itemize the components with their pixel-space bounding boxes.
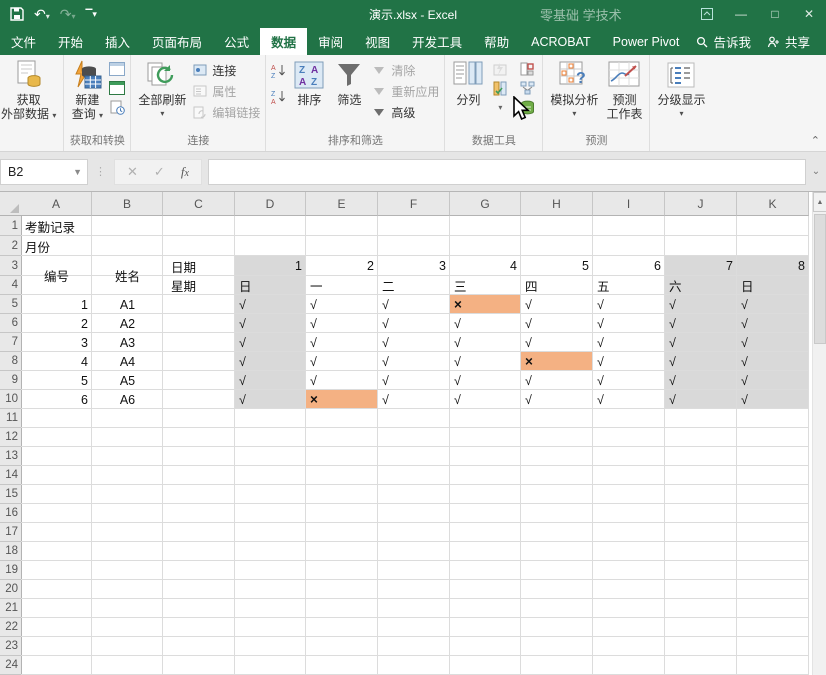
tell-me-box[interactable]: 告诉我 [690, 32, 757, 51]
tab-help[interactable]: 帮助 [473, 28, 520, 55]
record-id-cell[interactable]: 3 [21, 333, 92, 352]
date-cell[interactable]: 5 [521, 256, 593, 276]
row-header-10[interactable]: 10 [0, 390, 22, 409]
cell-G13[interactable] [450, 447, 521, 466]
row-header-3[interactable]: 3 [0, 256, 22, 276]
present-mark-cell[interactable]: √ [665, 390, 737, 409]
cell-B17[interactable] [92, 523, 163, 542]
date-cell[interactable]: 4 [450, 256, 521, 276]
cell-K19[interactable] [737, 561, 809, 580]
row-header-20[interactable]: 20 [0, 580, 22, 599]
cell-C14[interactable] [163, 466, 235, 485]
cell-K21[interactable] [737, 599, 809, 618]
name-box-caret[interactable]: ▼ [73, 167, 82, 177]
cell-J16[interactable] [665, 504, 737, 523]
row-header-15[interactable]: 15 [0, 485, 22, 504]
cell-E2[interactable] [306, 236, 378, 256]
cell-D11[interactable] [235, 409, 306, 428]
day-cell[interactable]: 日 [737, 276, 809, 295]
data-validation-caret[interactable]: ▾ [492, 99, 508, 115]
tab-power-pivot[interactable]: Power Pivot [602, 28, 691, 55]
cell-I11[interactable] [593, 409, 665, 428]
cell-E1[interactable] [306, 216, 378, 236]
select-all-corner[interactable] [0, 192, 22, 216]
cell-B21[interactable] [92, 599, 163, 618]
cell-F13[interactable] [378, 447, 450, 466]
refresh-all-button[interactable]: 全部刷新 ▾ [134, 56, 190, 121]
cell-K11[interactable] [737, 409, 809, 428]
cell-J24[interactable] [665, 656, 737, 675]
tab-page-layout[interactable]: 页面布局 [141, 28, 213, 55]
date-header-cell[interactable]: 日期 [163, 256, 235, 276]
cell-C13[interactable] [163, 447, 235, 466]
cell-G18[interactable] [450, 542, 521, 561]
present-mark-cell[interactable]: √ [665, 333, 737, 352]
cell-C2[interactable] [163, 236, 235, 256]
expand-formula-bar-icon[interactable]: ⌄ [806, 166, 826, 177]
name-box[interactable]: B2 ▼ [0, 159, 88, 185]
cell-D20[interactable] [235, 580, 306, 599]
cell-I17[interactable] [593, 523, 665, 542]
present-mark-cell[interactable]: √ [235, 333, 306, 352]
cell-J12[interactable] [665, 428, 737, 447]
customize-qat-icon[interactable]: ▔▾ [86, 9, 97, 20]
present-mark-cell[interactable]: √ [737, 371, 809, 390]
formula-input[interactable] [208, 159, 806, 185]
cell-H23[interactable] [521, 637, 593, 656]
scroll-up-icon[interactable]: ▲ [813, 192, 826, 212]
tab-view[interactable]: 视图 [354, 28, 401, 55]
tab-developer[interactable]: 开发工具 [401, 28, 473, 55]
cell-B14[interactable] [92, 466, 163, 485]
row-header-22[interactable]: 22 [0, 618, 22, 637]
cell-A17[interactable] [21, 523, 92, 542]
column-header-H[interactable]: H [521, 192, 593, 216]
cell-I22[interactable] [593, 618, 665, 637]
tab-home[interactable]: 开始 [47, 28, 94, 55]
cell-E12[interactable] [306, 428, 378, 447]
present-mark-cell[interactable]: √ [450, 352, 521, 371]
tab-file[interactable]: 文件 [0, 28, 47, 55]
row-header-5[interactable]: 5 [0, 295, 22, 314]
row-header-2[interactable]: 2 [0, 236, 22, 256]
cell-E11[interactable] [306, 409, 378, 428]
from-table-icon[interactable] [109, 61, 125, 77]
row-header-18[interactable]: 18 [0, 542, 22, 561]
cell-C9[interactable] [163, 371, 235, 390]
cell-H24[interactable] [521, 656, 593, 675]
row-header-9[interactable]: 9 [0, 371, 22, 390]
record-id-cell[interactable]: 1 [21, 295, 92, 314]
record-id-cell[interactable]: 6 [21, 390, 92, 409]
scrollbar-thumb[interactable] [814, 214, 826, 344]
present-mark-cell[interactable]: √ [665, 314, 737, 333]
row-header-24[interactable]: 24 [0, 656, 22, 675]
cell-K15[interactable] [737, 485, 809, 504]
cell-I20[interactable] [593, 580, 665, 599]
cell-D19[interactable] [235, 561, 306, 580]
cell-D12[interactable] [235, 428, 306, 447]
share-button[interactable]: 共享 [761, 32, 816, 51]
what-if-analysis-button[interactable]: ? 模拟分析 ▾ [546, 56, 602, 121]
present-mark-cell[interactable]: √ [593, 333, 665, 352]
cell-G22[interactable] [450, 618, 521, 637]
present-mark-cell[interactable]: √ [235, 390, 306, 409]
cell-D24[interactable] [235, 656, 306, 675]
cell-G24[interactable] [450, 656, 521, 675]
cell-D17[interactable] [235, 523, 306, 542]
column-header-G[interactable]: G [450, 192, 521, 216]
cell-F19[interactable] [378, 561, 450, 580]
cell-F22[interactable] [378, 618, 450, 637]
cell-A23[interactable] [21, 637, 92, 656]
cell-G17[interactable] [450, 523, 521, 542]
present-mark-cell[interactable]: √ [235, 314, 306, 333]
cell-F14[interactable] [378, 466, 450, 485]
date-cell[interactable]: 3 [378, 256, 450, 276]
cell-H15[interactable] [521, 485, 593, 504]
present-mark-cell[interactable]: √ [378, 352, 450, 371]
cell-H1[interactable] [521, 216, 593, 236]
cell-C21[interactable] [163, 599, 235, 618]
cell-D16[interactable] [235, 504, 306, 523]
cell-H21[interactable] [521, 599, 593, 618]
present-mark-cell[interactable]: √ [450, 390, 521, 409]
cell-A24[interactable] [21, 656, 92, 675]
row-header-23[interactable]: 23 [0, 637, 22, 656]
row-header-16[interactable]: 16 [0, 504, 22, 523]
date-cell[interactable]: 8 [737, 256, 809, 276]
minimize-icon[interactable]: — [724, 0, 758, 28]
present-mark-cell[interactable]: √ [521, 371, 593, 390]
cell-K23[interactable] [737, 637, 809, 656]
cell-C12[interactable] [163, 428, 235, 447]
present-mark-cell[interactable]: √ [235, 352, 306, 371]
advanced-filter-button[interactable]: 高级 [371, 103, 439, 121]
record-name-cell[interactable]: A6 [92, 390, 163, 409]
present-mark-cell[interactable]: √ [593, 371, 665, 390]
cell-E21[interactable] [306, 599, 378, 618]
cell-C15[interactable] [163, 485, 235, 504]
month-label-cell[interactable]: 月份 [21, 236, 121, 256]
present-mark-cell[interactable]: √ [235, 371, 306, 390]
row-header-21[interactable]: 21 [0, 599, 22, 618]
cell-H13[interactable] [521, 447, 593, 466]
cell-I14[interactable] [593, 466, 665, 485]
column-header-E[interactable]: E [306, 192, 378, 216]
row-header-17[interactable]: 17 [0, 523, 22, 542]
column-header-D[interactable]: D [235, 192, 306, 216]
cell-C20[interactable] [163, 580, 235, 599]
present-mark-cell[interactable]: √ [521, 295, 593, 314]
manage-data-model-icon[interactable] [519, 99, 535, 115]
cell-H18[interactable] [521, 542, 593, 561]
present-mark-cell[interactable]: √ [378, 295, 450, 314]
row-header-19[interactable]: 19 [0, 561, 22, 580]
cell-J11[interactable] [665, 409, 737, 428]
present-mark-cell[interactable]: √ [450, 333, 521, 352]
cell-C17[interactable] [163, 523, 235, 542]
cell-B23[interactable] [92, 637, 163, 656]
cell-D1[interactable] [235, 216, 306, 236]
tab-review[interactable]: 审阅 [307, 28, 354, 55]
cell-J1[interactable] [665, 216, 737, 236]
cell-H14[interactable] [521, 466, 593, 485]
present-mark-cell[interactable]: √ [593, 390, 665, 409]
cell-C11[interactable] [163, 409, 235, 428]
vertical-scrollbar[interactable]: ▲ [812, 192, 826, 675]
present-mark-cell[interactable]: √ [378, 314, 450, 333]
cell-I12[interactable] [593, 428, 665, 447]
present-mark-cell[interactable]: √ [593, 352, 665, 371]
cell-F18[interactable] [378, 542, 450, 561]
absent-mark-cell[interactable]: × [521, 352, 593, 371]
cell-B13[interactable] [92, 447, 163, 466]
record-name-cell[interactable]: A1 [92, 295, 163, 314]
collapse-ribbon-icon[interactable]: ⌃ [811, 134, 820, 147]
maximize-icon[interactable]: □ [758, 0, 792, 28]
day-cell[interactable]: 日 [235, 276, 306, 295]
cell-K14[interactable] [737, 466, 809, 485]
sort-ascending-button[interactable]: AZ [271, 62, 287, 78]
cell-C5[interactable] [163, 295, 235, 314]
cell-G21[interactable] [450, 599, 521, 618]
cell-I15[interactable] [593, 485, 665, 504]
cell-J13[interactable] [665, 447, 737, 466]
cell-E22[interactable] [306, 618, 378, 637]
column-header-J[interactable]: J [665, 192, 737, 216]
present-mark-cell[interactable]: √ [521, 333, 593, 352]
cell-J14[interactable] [665, 466, 737, 485]
cell-A11[interactable] [21, 409, 92, 428]
cell-F12[interactable] [378, 428, 450, 447]
cell-A15[interactable] [21, 485, 92, 504]
tab-data[interactable]: 数据 [260, 28, 307, 55]
existing-connections-icon[interactable] [109, 99, 125, 115]
cell-I18[interactable] [593, 542, 665, 561]
present-mark-cell[interactable]: √ [737, 390, 809, 409]
cell-G19[interactable] [450, 561, 521, 580]
redo-button[interactable]: ↷▾ [60, 7, 76, 22]
cell-J19[interactable] [665, 561, 737, 580]
cell-K16[interactable] [737, 504, 809, 523]
cell-E14[interactable] [306, 466, 378, 485]
cell-K2[interactable] [737, 236, 809, 256]
cell-G23[interactable] [450, 637, 521, 656]
day-cell[interactable]: 六 [665, 276, 737, 295]
row-header-8[interactable]: 8 [0, 352, 22, 371]
cell-C18[interactable] [163, 542, 235, 561]
row-header-12[interactable]: 12 [0, 428, 22, 447]
cell-D18[interactable] [235, 542, 306, 561]
cell-K18[interactable] [737, 542, 809, 561]
cell-F2[interactable] [378, 236, 450, 256]
cell-F23[interactable] [378, 637, 450, 656]
cell-B15[interactable] [92, 485, 163, 504]
date-cell[interactable]: 7 [665, 256, 737, 276]
cell-K12[interactable] [737, 428, 809, 447]
present-mark-cell[interactable]: √ [521, 314, 593, 333]
tab-acrobat[interactable]: ACROBAT [520, 28, 602, 55]
save-icon[interactable] [10, 7, 24, 21]
cell-G14[interactable] [450, 466, 521, 485]
cell-C24[interactable] [163, 656, 235, 675]
column-header-A[interactable]: A [21, 192, 92, 216]
present-mark-cell[interactable]: √ [737, 333, 809, 352]
cell-I1[interactable] [593, 216, 665, 236]
cell-E23[interactable] [306, 637, 378, 656]
cell-C8[interactable] [163, 352, 235, 371]
cell-H20[interactable] [521, 580, 593, 599]
cell-B11[interactable] [92, 409, 163, 428]
row-header-7[interactable]: 7 [0, 333, 22, 352]
present-mark-cell[interactable]: √ [737, 314, 809, 333]
present-mark-cell[interactable]: √ [737, 352, 809, 371]
record-id-cell[interactable]: 5 [21, 371, 92, 390]
cell-J2[interactable] [665, 236, 737, 256]
cell-F20[interactable] [378, 580, 450, 599]
cell-I23[interactable] [593, 637, 665, 656]
present-mark-cell[interactable]: √ [306, 371, 378, 390]
cell-G15[interactable] [450, 485, 521, 504]
cell-I2[interactable] [593, 236, 665, 256]
cell-D15[interactable] [235, 485, 306, 504]
cell-A22[interactable] [21, 618, 92, 637]
cell-H17[interactable] [521, 523, 593, 542]
cell-A14[interactable] [21, 466, 92, 485]
cell-B24[interactable] [92, 656, 163, 675]
row-header-13[interactable]: 13 [0, 447, 22, 466]
id-header-cell[interactable]: 编号 [21, 256, 92, 295]
cell-G11[interactable] [450, 409, 521, 428]
cell-I24[interactable] [593, 656, 665, 675]
day-cell[interactable]: 四 [521, 276, 593, 295]
column-header-I[interactable]: I [593, 192, 665, 216]
present-mark-cell[interactable]: √ [450, 314, 521, 333]
cell-F15[interactable] [378, 485, 450, 504]
row-header-4[interactable]: 4 [0, 276, 22, 295]
cell-A12[interactable] [21, 428, 92, 447]
sort-descending-button[interactable]: ZA [271, 88, 287, 104]
present-mark-cell[interactable]: √ [306, 295, 378, 314]
cell-E15[interactable] [306, 485, 378, 504]
cell-C10[interactable] [163, 390, 235, 409]
cell-F16[interactable] [378, 504, 450, 523]
date-cell[interactable]: 1 [235, 256, 306, 276]
cell-H19[interactable] [521, 561, 593, 580]
cell-F1[interactable] [378, 216, 450, 236]
cell-B18[interactable] [92, 542, 163, 561]
cell-K13[interactable] [737, 447, 809, 466]
present-mark-cell[interactable]: √ [665, 295, 737, 314]
name-header-cell[interactable]: 姓名 [92, 256, 163, 295]
present-mark-cell[interactable]: √ [306, 314, 378, 333]
present-mark-cell[interactable]: √ [593, 314, 665, 333]
cell-E13[interactable] [306, 447, 378, 466]
cell-C7[interactable] [163, 333, 235, 352]
row-header-1[interactable]: 1 [0, 216, 22, 236]
cell-C16[interactable] [163, 504, 235, 523]
present-mark-cell[interactable]: √ [593, 295, 665, 314]
record-id-cell[interactable]: 4 [21, 352, 92, 371]
present-mark-cell[interactable]: √ [235, 295, 306, 314]
cell-K22[interactable] [737, 618, 809, 637]
cell-D21[interactable] [235, 599, 306, 618]
cell-F21[interactable] [378, 599, 450, 618]
cell-C23[interactable] [163, 637, 235, 656]
forecast-sheet-button[interactable]: 预测 工作表 [602, 56, 646, 121]
insert-function-icon[interactable]: fx [181, 164, 189, 180]
cell-C6[interactable] [163, 314, 235, 333]
cell-D22[interactable] [235, 618, 306, 637]
cell-B16[interactable] [92, 504, 163, 523]
column-header-F[interactable]: F [378, 192, 450, 216]
cell-J21[interactable] [665, 599, 737, 618]
cell-J22[interactable] [665, 618, 737, 637]
present-mark-cell[interactable]: √ [737, 295, 809, 314]
cell-F17[interactable] [378, 523, 450, 542]
row-header-6[interactable]: 6 [0, 314, 22, 333]
cell-D13[interactable] [235, 447, 306, 466]
absent-mark-cell[interactable]: × [450, 295, 521, 314]
week-header-cell[interactable]: 星期 [163, 276, 235, 295]
cell-I16[interactable] [593, 504, 665, 523]
cell-E16[interactable] [306, 504, 378, 523]
cell-K24[interactable] [737, 656, 809, 675]
cell-E19[interactable] [306, 561, 378, 580]
present-mark-cell[interactable]: √ [665, 371, 737, 390]
cell-F11[interactable] [378, 409, 450, 428]
present-mark-cell[interactable]: √ [521, 390, 593, 409]
cell-H11[interactable] [521, 409, 593, 428]
cell-A13[interactable] [21, 447, 92, 466]
outline-button[interactable]: 分级显示 ▾ [653, 56, 709, 121]
record-name-cell[interactable]: A5 [92, 371, 163, 390]
present-mark-cell[interactable]: √ [306, 333, 378, 352]
cell-G20[interactable] [450, 580, 521, 599]
record-name-cell[interactable]: A4 [92, 352, 163, 371]
column-header-K[interactable]: K [737, 192, 809, 216]
tab-formulas[interactable]: 公式 [213, 28, 260, 55]
cell-B19[interactable] [92, 561, 163, 580]
recent-sources-icon[interactable] [109, 80, 125, 96]
record-id-cell[interactable]: 2 [21, 314, 92, 333]
cell-G1[interactable] [450, 216, 521, 236]
present-mark-cell[interactable]: √ [450, 371, 521, 390]
present-mark-cell[interactable]: √ [665, 352, 737, 371]
cell-A18[interactable] [21, 542, 92, 561]
day-cell[interactable]: 二 [378, 276, 450, 295]
cell-A20[interactable] [21, 580, 92, 599]
cell-F24[interactable] [378, 656, 450, 675]
cell-K1[interactable] [737, 216, 809, 236]
sort-button[interactable]: ZAAZ 排序 [289, 56, 329, 107]
record-name-cell[interactable]: A2 [92, 314, 163, 333]
connections-button[interactable]: 连接 [192, 61, 260, 79]
cell-E24[interactable] [306, 656, 378, 675]
cell-J18[interactable] [665, 542, 737, 561]
row-header-11[interactable]: 11 [0, 409, 22, 428]
row-header-14[interactable]: 14 [0, 466, 22, 485]
cell-J15[interactable] [665, 485, 737, 504]
column-header-C[interactable]: C [163, 192, 235, 216]
filter-button[interactable]: 筛选 [329, 56, 369, 107]
cell-A21[interactable] [21, 599, 92, 618]
date-cell[interactable]: 6 [593, 256, 665, 276]
cell-G2[interactable] [450, 236, 521, 256]
cell-H22[interactable] [521, 618, 593, 637]
present-mark-cell[interactable]: √ [378, 371, 450, 390]
